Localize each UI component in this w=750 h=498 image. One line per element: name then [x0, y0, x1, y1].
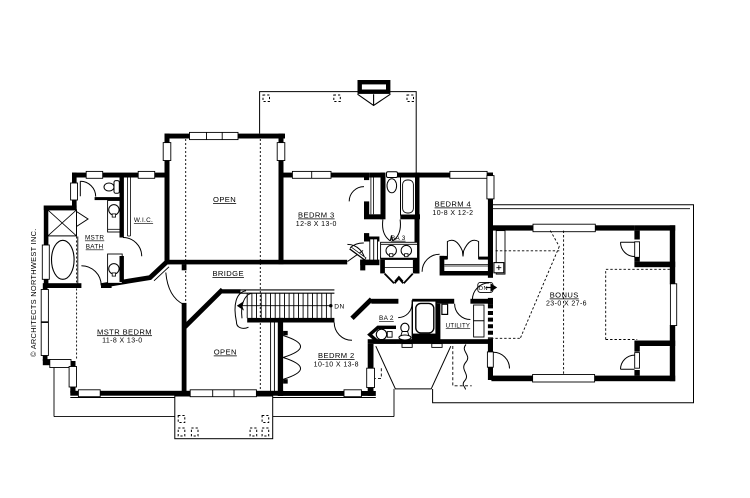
svg-text:BEDRM 4: BEDRM 4 [435, 200, 472, 209]
svg-text:BONUS: BONUS [550, 291, 579, 300]
svg-text:DN: DN [479, 286, 488, 292]
svg-text:12-8 X 13-0: 12-8 X 13-0 [296, 221, 337, 228]
svg-text:BA 3: BA 3 [391, 235, 406, 242]
svg-text:BA 2: BA 2 [379, 315, 394, 322]
svg-text:OPEN: OPEN [214, 348, 237, 357]
svg-text:10-10 X 13-8: 10-10 X 13-8 [314, 362, 359, 369]
svg-text:© ARCHITECTS NORTHWEST INC.: © ARCHITECTS NORTHWEST INC. [29, 228, 38, 357]
svg-text:10-8 X 12-2: 10-8 X 12-2 [432, 210, 473, 217]
svg-text:BEDRM 3: BEDRM 3 [298, 211, 335, 220]
svg-text:BEDRM 2: BEDRM 2 [318, 351, 355, 360]
svg-text:11-8 X 13-0: 11-8 X 13-0 [102, 338, 142, 345]
svg-text:BRIDGE: BRIDGE [212, 269, 244, 278]
svg-text:UTILITY: UTILITY [446, 323, 470, 329]
svg-text:W.I.C.: W.I.C. [134, 217, 153, 224]
svg-text:MSTR: MSTR [85, 235, 104, 242]
svg-text:BATH: BATH [86, 244, 104, 251]
svg-text:23-0 X 27-6: 23-0 X 27-6 [546, 301, 587, 308]
svg-text:DN: DN [334, 303, 344, 310]
svg-text:MSTR BEDRM: MSTR BEDRM [97, 327, 152, 336]
svg-text:OPEN: OPEN [213, 195, 236, 204]
